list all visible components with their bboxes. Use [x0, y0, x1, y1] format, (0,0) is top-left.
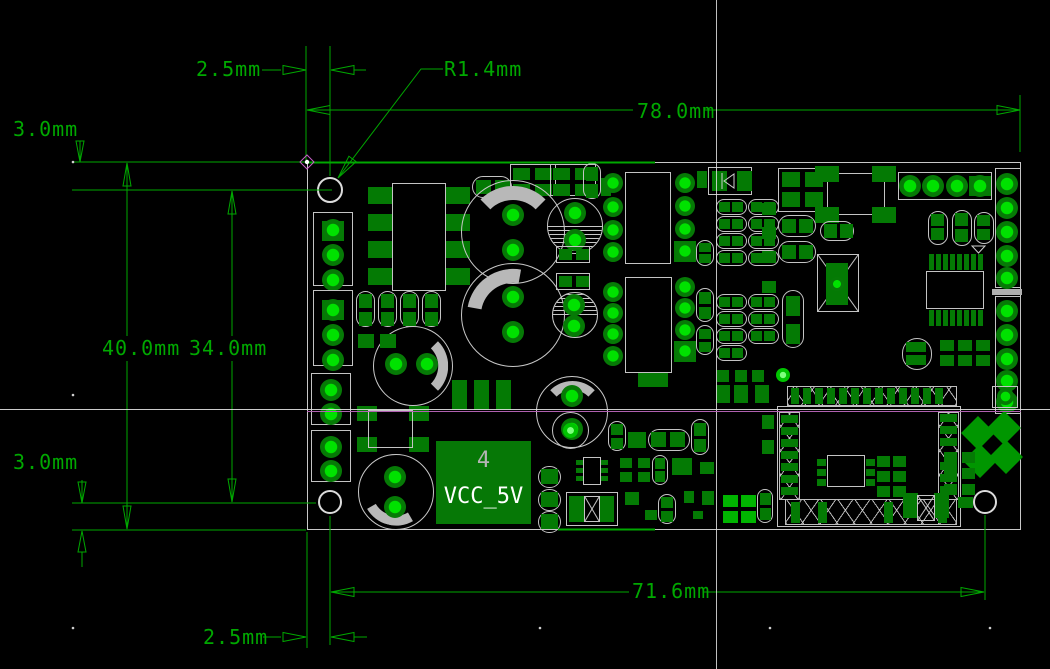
hole-span-vertical-label: 34.0mm — [189, 339, 267, 358]
radius-callout-label: R1.4mm — [444, 60, 522, 79]
cad-viewport[interactable]: 2.5mm R1.4mm 78.0mm 3.0mm 40.0mm 34.0mm … — [0, 0, 1050, 669]
dimension-lines — [0, 0, 1050, 669]
board-width-dim-label: 78.0mm — [637, 102, 715, 121]
vcc-designator-label: 4 — [436, 448, 531, 473]
dim-top-offset-label: 2.5mm — [196, 60, 261, 79]
hole-span-horizontal-label: 71.6mm — [632, 582, 710, 601]
crosshair-lines — [0, 0, 1050, 669]
top-margin-dim-label: 3.0mm — [13, 120, 78, 139]
grid-dots — [72, 161, 992, 630]
bottom-margin-dim-label: 3.0mm — [13, 453, 78, 472]
bottom-offset-dim-label: 2.5mm — [203, 628, 268, 647]
diode-symbol-icon — [722, 173, 985, 253]
vcc-net-label: VCC_5V — [436, 484, 531, 509]
board-height-dim-label: 40.0mm — [102, 339, 180, 358]
